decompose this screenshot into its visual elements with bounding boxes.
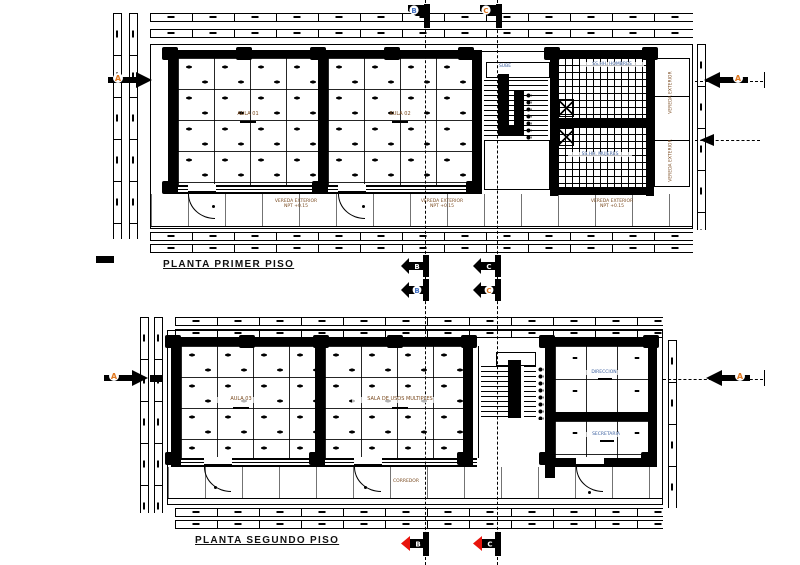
svg-text:C: C — [487, 541, 492, 549]
vereda-annotation: VEREDA EXTERIOR NPT +0.15 — [412, 199, 472, 209]
section-line-tick — [764, 72, 765, 88]
level-mark — [233, 407, 249, 409]
dimension-strip — [154, 317, 163, 513]
wall-line — [482, 51, 550, 52]
dimension-end-mark — [96, 256, 114, 263]
section-marker-c-top: C — [478, 2, 504, 28]
section-marker-a-right-f1: A — [704, 70, 752, 90]
room-label-direccion: DIRECCION — [576, 370, 632, 375]
room-label-aula-01: AULA 01 — [218, 112, 278, 118]
svg-text:A: A — [111, 372, 118, 381]
wall — [463, 338, 473, 466]
section-marker-a-left-f1: A — [104, 70, 152, 90]
vereda-annotation: VEREDA EXTERIOR NPT +0.15 — [266, 199, 326, 209]
svg-text:B: B — [414, 287, 419, 295]
room-label-secretaria: SECRETARIA — [578, 432, 634, 437]
wall — [545, 338, 657, 346]
svg-text:B: B — [411, 7, 416, 15]
stair-label: SUBE — [490, 64, 520, 69]
svg-text:B: B — [415, 541, 420, 549]
room-label-aula-03: AULA 03 — [212, 397, 270, 403]
stair-treads — [481, 366, 509, 418]
svg-text:A: A — [115, 74, 122, 83]
floorplan-canvas: AULA 01 AULA 02 SUBE SS.HH. HOMBRES SS.H… — [0, 0, 800, 565]
floor-drain — [212, 205, 215, 208]
room-label-bath-women: SS.HH. MUJERES — [568, 152, 632, 157]
section-marker-b-bottom: B — [401, 532, 431, 556]
annex-label-vereda: VEREDA EXTERIOR — [668, 136, 673, 186]
wall — [472, 50, 482, 192]
vereda-line2: NPT +0.15 — [600, 204, 624, 209]
wall — [168, 50, 178, 192]
floor-drain — [362, 205, 365, 208]
svg-text:C: C — [486, 263, 491, 271]
stair-nosing-marks — [526, 92, 532, 140]
stair-wall — [508, 360, 521, 418]
duct-x-symbol — [559, 99, 574, 117]
dimension-strip — [150, 29, 693, 38]
room-label-sala: SALA DE USOS MULTIPLES — [352, 397, 448, 403]
section-marker-c-mid-up: C — [473, 255, 503, 277]
reference-arrow — [700, 134, 714, 146]
dimension-strip — [175, 317, 663, 326]
room-label-corredor: CORREDOR — [376, 479, 436, 484]
wall — [315, 338, 325, 466]
svg-text:C: C — [483, 7, 488, 15]
duct-x-symbol — [559, 128, 574, 146]
wall — [555, 412, 649, 421]
dimension-strip — [140, 317, 149, 513]
wall — [646, 58, 654, 196]
corridor-edge — [150, 226, 693, 229]
stair-edge — [478, 346, 479, 458]
level-mark — [392, 121, 408, 123]
column — [539, 452, 555, 465]
dimension-strip — [668, 340, 677, 508]
wall — [550, 58, 558, 196]
stair-wall — [514, 90, 524, 134]
section-marker-b-mid-low: B — [401, 279, 431, 301]
dimension-strip — [129, 13, 138, 239]
stair-landing — [484, 140, 550, 190]
vereda-line2: NPT +0.15 — [284, 204, 308, 209]
corridor-edge — [167, 498, 663, 499]
room-label-aula-02: AULA 02 — [370, 112, 430, 118]
vereda-line2: NPT +0.15 — [430, 204, 454, 209]
section-marker-c-bottom: C — [473, 532, 503, 556]
wall — [171, 338, 181, 466]
vereda-annotation: VEREDA EXTERIOR NPT +0.15 — [582, 199, 642, 209]
floor-drain — [588, 491, 591, 494]
level-mark — [598, 378, 612, 380]
section-marker-b-top: B — [406, 2, 432, 28]
dimension-strip — [175, 508, 663, 517]
svg-text:A: A — [737, 372, 744, 381]
stair-treads — [524, 366, 536, 418]
stair-nosing-marks — [538, 366, 544, 420]
svg-text:B: B — [414, 263, 419, 271]
svg-text:C: C — [486, 287, 491, 295]
svg-text:A: A — [735, 74, 742, 83]
dimension-strip — [113, 13, 122, 239]
wall — [550, 118, 654, 127]
dimension-strip — [150, 244, 693, 253]
section-marker-a-left-f2: A — [100, 368, 148, 388]
floor-drain — [364, 486, 367, 489]
level-mark — [240, 121, 256, 123]
floor1-title: PLANTA PRIMER PISO — [163, 259, 294, 270]
section-dash — [150, 375, 162, 382]
room-label-bath-men: SS.HH. HOMBRES — [580, 62, 644, 67]
annex-label-vereda: VEREDA EXTERIOR — [668, 68, 673, 118]
section-marker-b-mid-up: B — [401, 255, 431, 277]
floor-drain — [214, 486, 217, 489]
level-mark — [600, 440, 614, 442]
wall — [550, 50, 656, 58]
stair-wall — [498, 74, 509, 132]
wall — [318, 50, 328, 192]
section-line-tick — [764, 370, 765, 386]
section-marker-c-mid-low: C — [473, 279, 503, 301]
dimension-strip — [175, 520, 663, 529]
wall — [648, 338, 657, 466]
dimension-strip — [150, 232, 693, 241]
level-mark — [392, 407, 408, 409]
section-marker-a-right-f2: A — [706, 368, 754, 388]
floor2-title: PLANTA SEGUNDO PISO — [195, 535, 339, 546]
